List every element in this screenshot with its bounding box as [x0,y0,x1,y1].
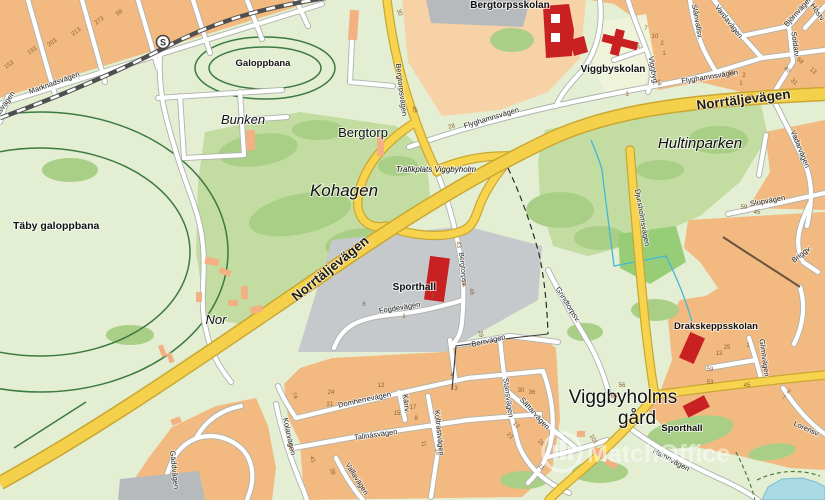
place-label: Sporthall [393,282,437,293]
house-number: 53 [707,380,714,386]
house-number: 17 [410,405,417,411]
house-number: 24 [328,390,335,396]
place-label: Drakskeppsskolan [674,321,758,332]
house-number: 30 [518,388,525,394]
place-label: Täby galoppbana [13,220,100,232]
house-number: 25 [724,345,731,351]
place-label: Bergtorpsskolan [470,0,549,11]
place-label: gård [618,408,656,429]
house-number: 16 [728,71,735,77]
place-label: Galoppbana [236,58,292,69]
static-map[interactable]: S BergtorpsskolanViggbyskolanGaloppbanaB… [0,0,825,500]
house-number: 59 [707,367,714,373]
place-label: Sporthall [661,423,702,434]
house-number: 45 [744,383,751,389]
house-number: 45 [754,210,761,216]
place-label: Kohagen [310,181,378,200]
building-bergtorpsskolan [543,4,574,58]
house-number: 56 [619,383,626,389]
place-label: Viggbyholms [569,387,677,408]
house-number: 59 [741,205,748,211]
house-number: 65 [611,394,618,400]
watermark-text: MatchOffice [587,440,730,468]
place-label: Hultinparken [658,135,742,152]
house-number: 13 [716,351,723,357]
place-label: Bunken [221,112,265,127]
place-label: Trafikplats Viggbyholm [396,165,477,174]
map-canvas: S BergtorpsskolanViggbyskolanGaloppbanaB… [0,0,825,500]
house-number: 36 [529,390,536,396]
rail-station-symbol: S [157,36,170,49]
house-number: 12 [378,383,385,389]
place-label: Viggbyskolan [581,64,646,75]
place-label: Bergtorp [338,125,388,140]
house-number: 10 [652,34,659,40]
house-number: 15 [394,411,401,417]
house-number: 10 [747,95,754,101]
house-number: 21 [327,402,334,408]
station-letter: S [160,38,166,48]
place-label: Nor [206,312,228,327]
